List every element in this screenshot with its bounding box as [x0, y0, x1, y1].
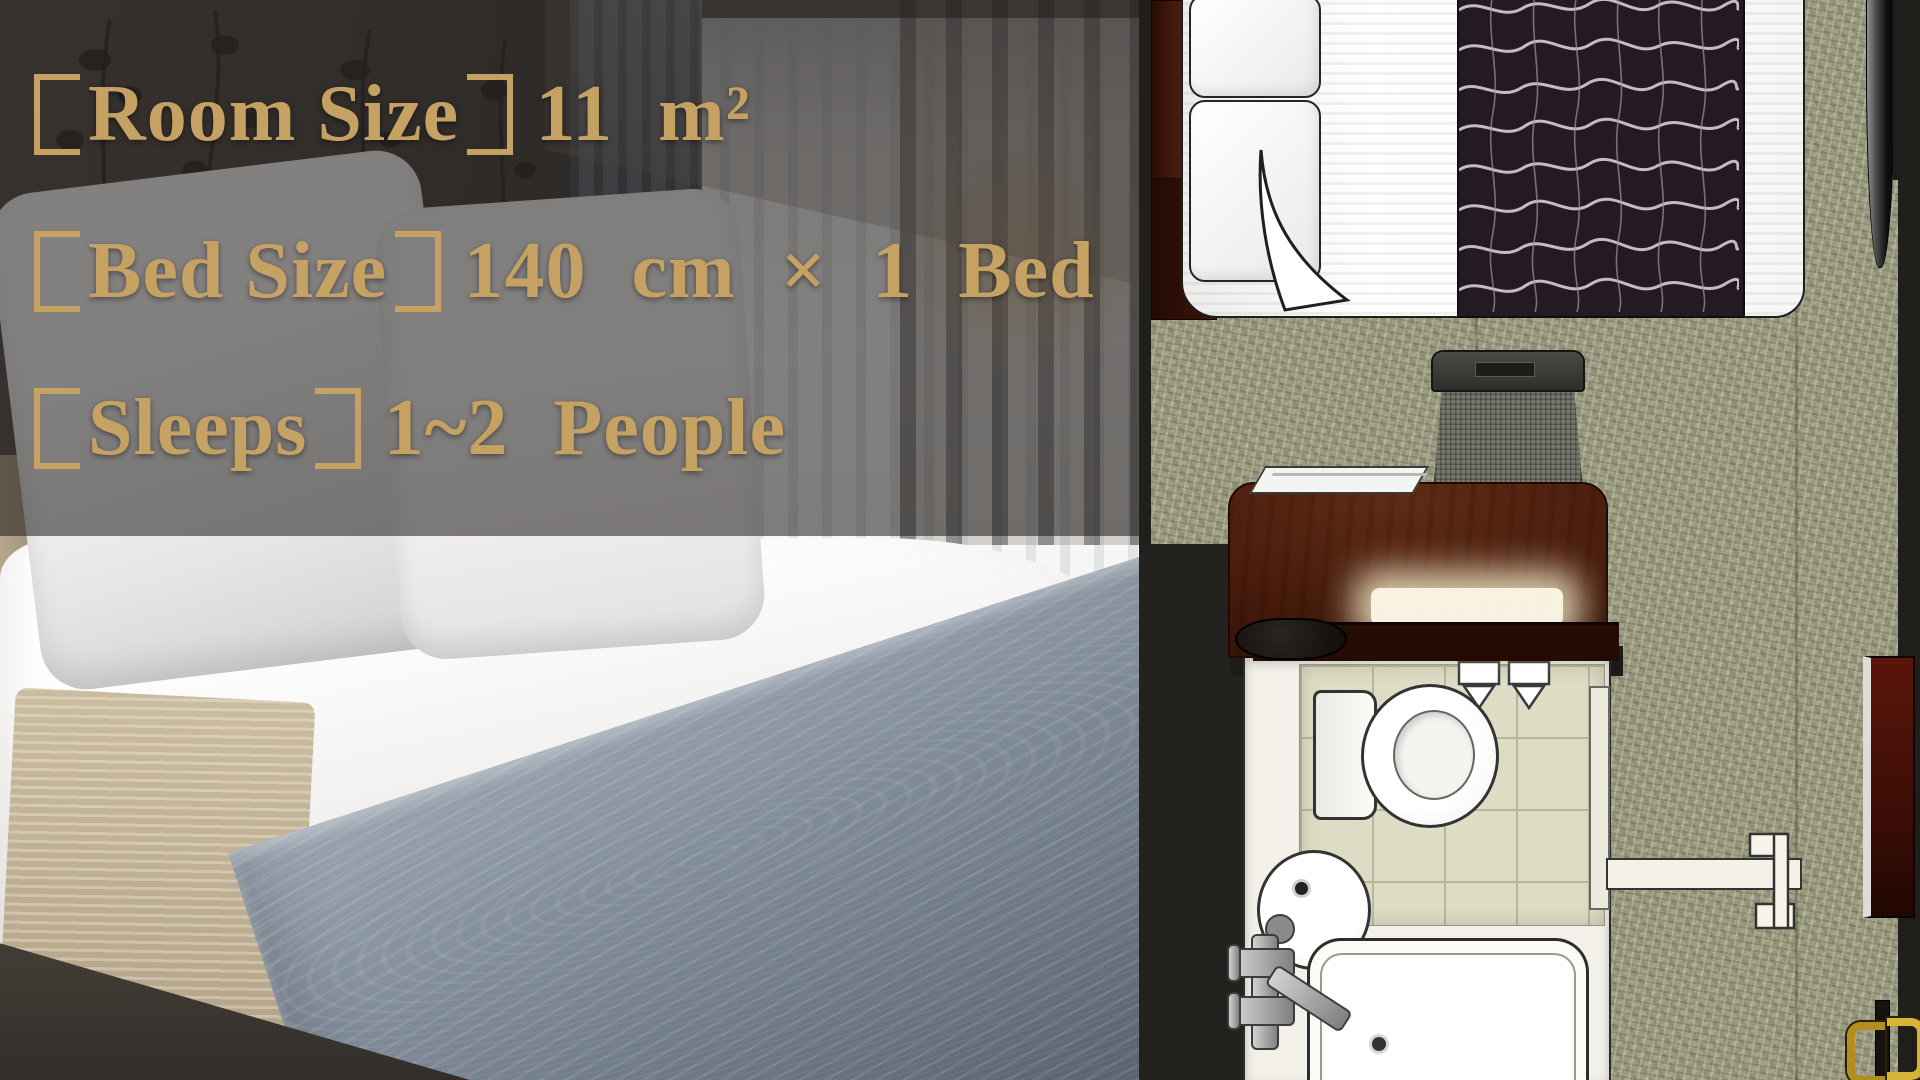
desk-papers — [1249, 466, 1429, 494]
right-wall — [1906, 0, 1920, 1080]
sink-drain — [1295, 882, 1308, 895]
bracket-open-icon — [34, 74, 80, 155]
door-handle-bracket — [1746, 832, 1800, 930]
photo-panel: Room Size11 m² Bed Size140 cm × 1 Bed Sl… — [0, 0, 1139, 1080]
duvet-fold — [1251, 148, 1361, 316]
room-spec-text: Room Size11 m² Bed Size140 cm × 1 Bed Sl… — [26, 36, 1095, 507]
spec-line-room-size: Room Size11 m² — [26, 36, 1095, 193]
runner-wave-pattern — [1459, 0, 1739, 312]
spec-value: 11 m² — [536, 69, 751, 160]
bathtub-inner — [1320, 953, 1576, 1080]
luggage-bench-mesh — [1433, 388, 1583, 492]
spec-line-bed-size: Bed Size140 cm × 1 Bed — [26, 193, 1095, 350]
plan-pillow — [1189, 0, 1321, 98]
luggage-bench-handle — [1475, 362, 1535, 377]
bathtub-drain — [1372, 1037, 1386, 1051]
wall-mirror — [1863, 656, 1915, 918]
bracket-close-icon — [315, 388, 361, 469]
faucet-handle — [1233, 996, 1295, 1026]
entrance-door-handle — [1847, 1000, 1917, 1080]
spec-label: Room Size — [88, 69, 459, 160]
faucet-mount — [1227, 944, 1241, 982]
bracket-open-icon — [34, 231, 80, 312]
bathroom-unit — [1243, 656, 1611, 1080]
bathtub — [1307, 938, 1589, 1080]
bracket-close-icon — [395, 231, 441, 312]
kettle-tray — [1235, 618, 1347, 660]
spec-line-sleeps: Sleeps1~2 People — [26, 350, 1095, 507]
bracket-close-icon — [467, 74, 513, 155]
under-desk-light — [1371, 588, 1563, 626]
luggage-bench-top — [1431, 350, 1585, 392]
spec-value: 140 cm × 1 Bed — [463, 226, 1094, 317]
brass-handle-left — [1847, 1022, 1885, 1080]
floorplan-panel — [1139, 0, 1920, 1080]
spec-label: Sleeps — [88, 383, 307, 474]
bracket-open-icon — [34, 388, 80, 469]
plan-bed-runner — [1457, 0, 1745, 318]
spec-value: 1~2 People — [384, 383, 786, 474]
brass-handle-right — [1887, 1018, 1920, 1080]
toilet-seat — [1393, 710, 1475, 800]
room-info-graphic: Room Size11 m² Bed Size140 cm × 1 Bed Sl… — [0, 0, 1920, 1080]
faucet-mount — [1227, 992, 1241, 1030]
spec-label: Bed Size — [88, 226, 387, 317]
